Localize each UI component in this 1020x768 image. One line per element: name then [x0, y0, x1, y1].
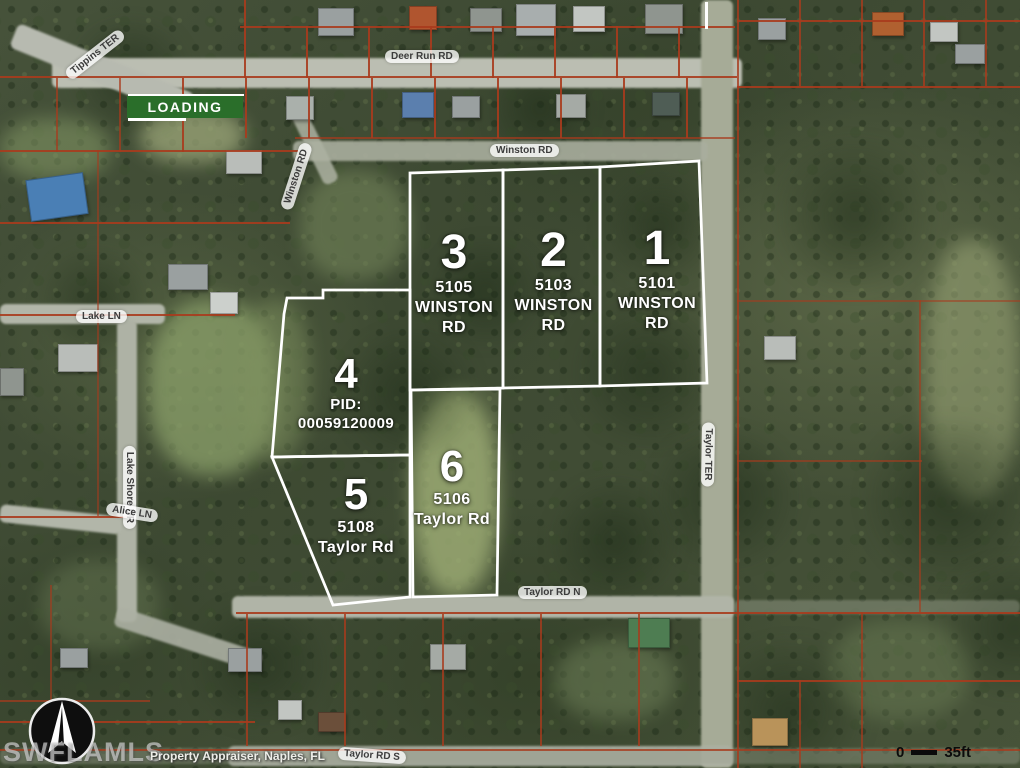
street-label-taylor-ter: Taylor TER	[701, 422, 715, 486]
scale-start-label: 0	[896, 744, 904, 761]
attribution-text: Property Appraiser, Naples, FL	[150, 749, 325, 763]
parcel-label-4: 4 PID: 00059120009	[280, 352, 412, 434]
loading-badge: LOADING	[127, 96, 243, 118]
street-label-winston-rd: Winston RD	[490, 144, 559, 157]
parcel-label-6: 6 5106 Taylor Rd	[402, 444, 502, 530]
parcel-address-line2: WINSTON RD	[406, 298, 502, 338]
swflamls-watermark: SWFLAMLS	[3, 737, 164, 768]
parcel-number: 1	[644, 224, 671, 274]
parcel-address-line1: 5105	[435, 278, 472, 298]
parcel-label-1: 1 5101 WINSTON RD	[605, 224, 709, 334]
white-line-below-badge	[128, 118, 186, 121]
parcel-address-line2: WINSTON RD	[605, 294, 709, 334]
parcel-address-line1: 5103	[535, 276, 572, 296]
parcel-label-3: 3 5105 WINSTON RD	[406, 228, 502, 338]
parcel-address-line2: Taylor Rd	[318, 538, 394, 558]
street-label-lake-ln: Lake LN	[76, 310, 127, 323]
parcel-number: 2	[540, 226, 567, 276]
parcel-label-5: 5 5108 Taylor Rd	[306, 472, 406, 558]
parcel-label-2: 2 5103 WINSTON RD	[506, 226, 601, 336]
parcel-number: 5	[344, 472, 368, 518]
parcel-pid: PID: 00059120009	[280, 396, 412, 434]
scale-end-label: 35ft	[944, 744, 971, 761]
scale-bar: 0 35ft	[896, 744, 971, 761]
white-tick-top	[705, 2, 708, 29]
parcel-address-line1: 5101	[638, 274, 675, 294]
parcel-number: 4	[334, 352, 357, 396]
parcel-address-line1: 5108	[337, 518, 374, 538]
aerial-parcel-map: 1 5101 WINSTON RD 2 5103 WINSTON RD 3 51…	[0, 0, 1020, 768]
scale-bar-segment	[911, 750, 937, 755]
parcel-address-line2: Taylor Rd	[414, 510, 490, 530]
parcel-number: 3	[441, 228, 468, 278]
parcel-number: 6	[440, 444, 464, 490]
parcel-address-line1: 5106	[433, 490, 470, 510]
parcel-address-line2: WINSTON RD	[506, 296, 601, 336]
street-label-taylor-rd-n: Taylor RD N	[518, 586, 587, 599]
street-label-deer-run-rd: Deer Run RD	[385, 50, 459, 63]
